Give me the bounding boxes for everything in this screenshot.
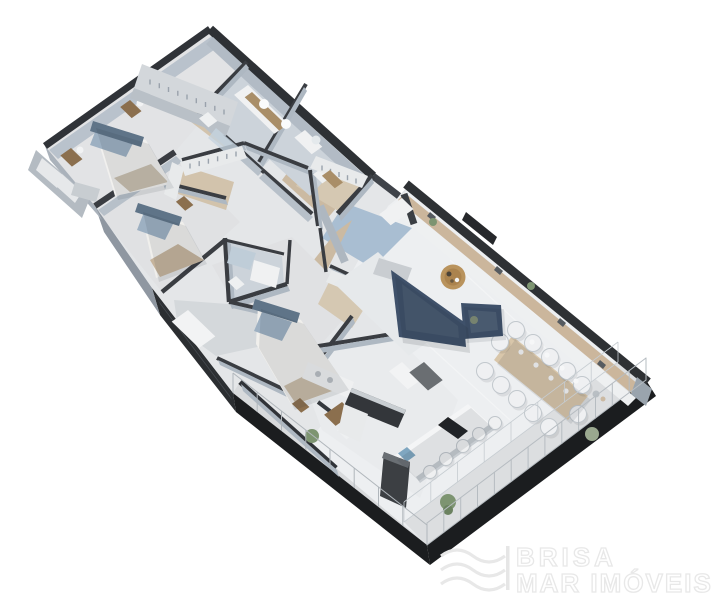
svg-text:MAR IMÓVEIS: MAR IMÓVEIS: [516, 568, 713, 598]
